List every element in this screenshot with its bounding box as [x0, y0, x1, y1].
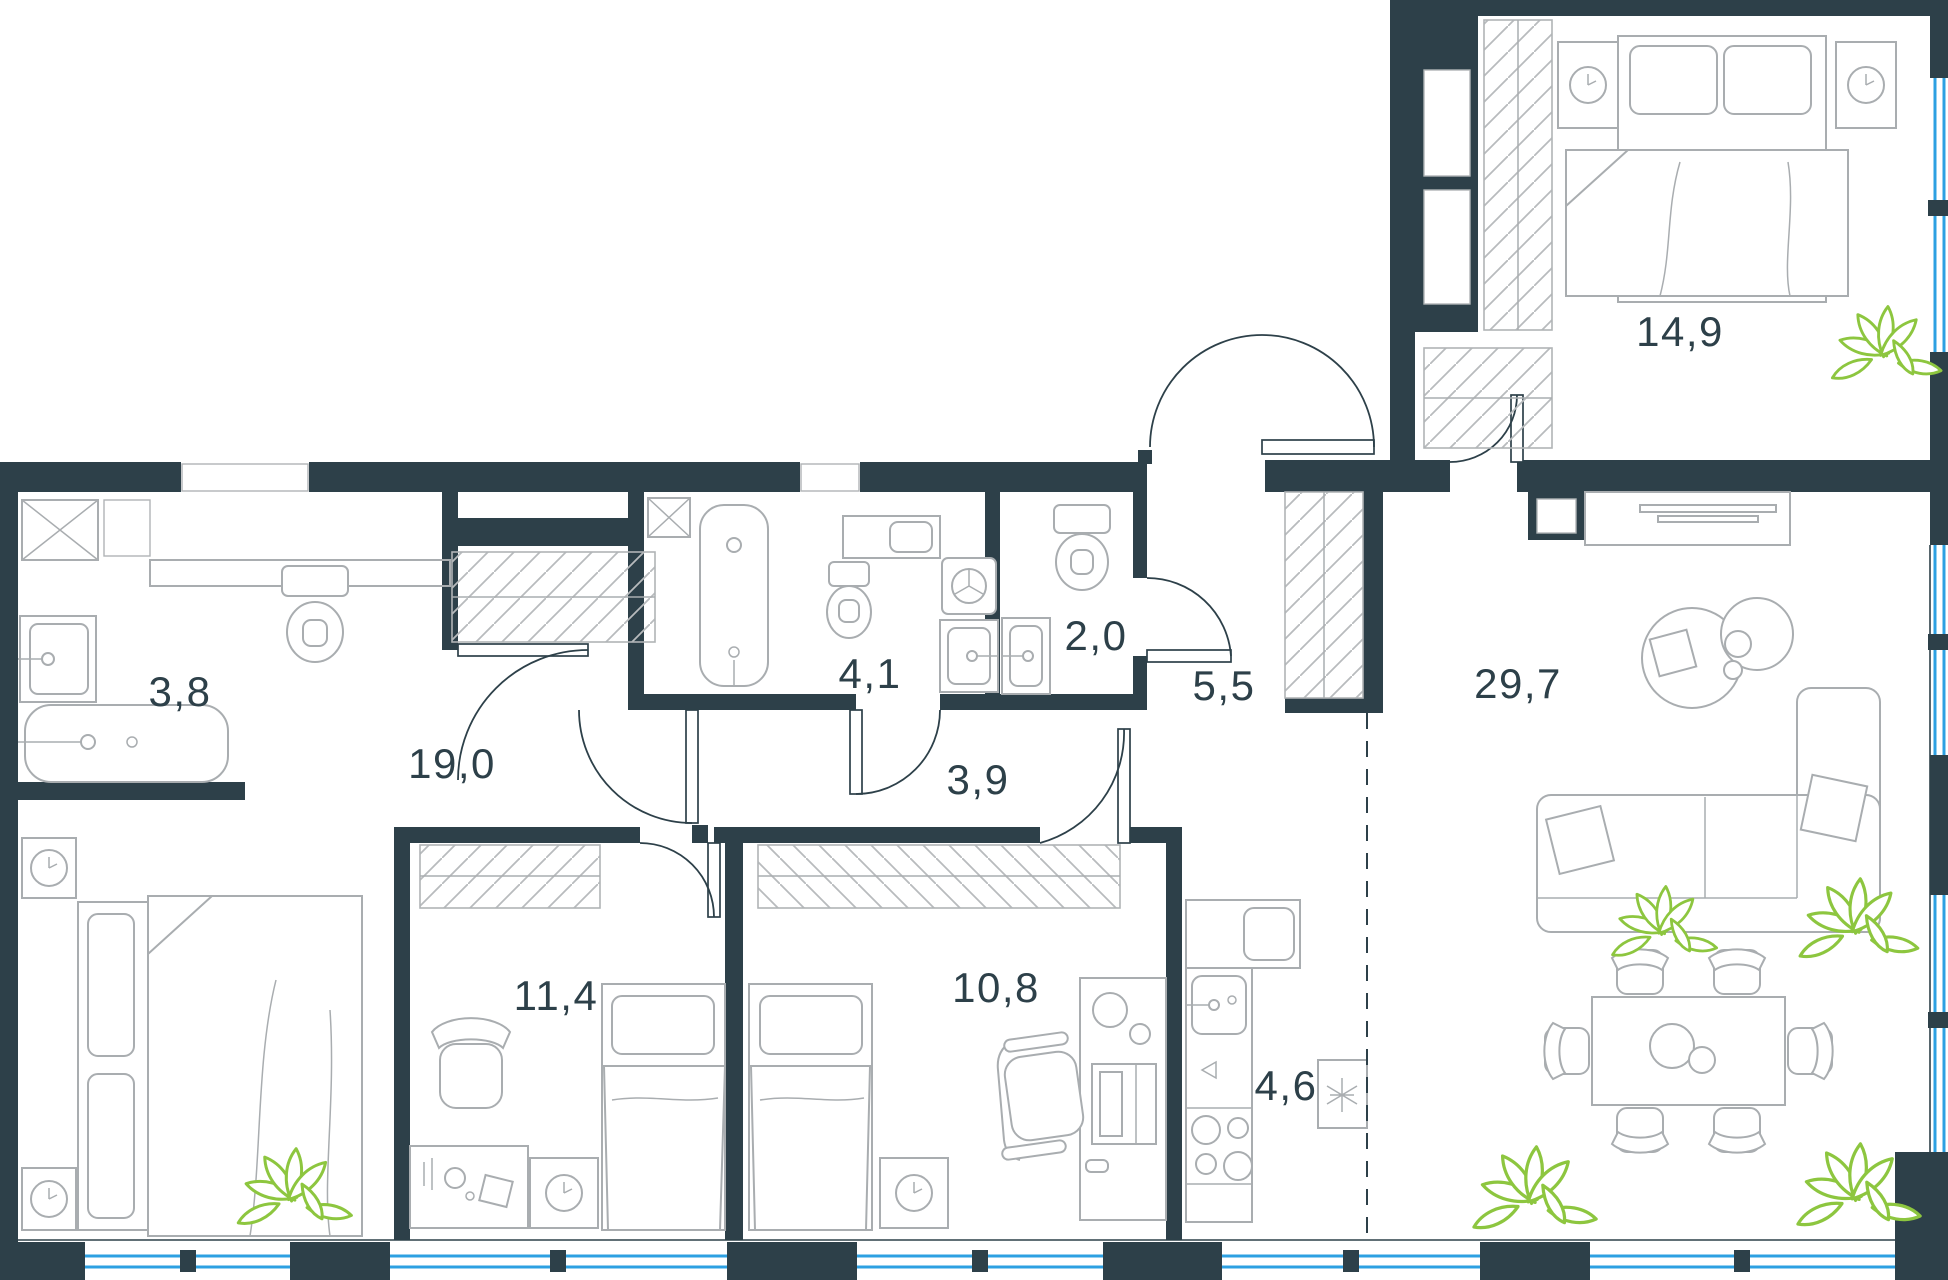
closet-hallway — [1285, 492, 1363, 698]
rack-bedroom-right — [1424, 348, 1552, 448]
bedroom-right-furniture — [1558, 36, 1942, 384]
wc-guest-fixtures — [1002, 505, 1110, 694]
dining-table — [1592, 997, 1785, 1105]
bathtub-icon — [700, 505, 768, 686]
room-label-kitchen: 4,6 — [1255, 1062, 1318, 1109]
washing-machine-icon — [942, 558, 996, 614]
floor-plan: 3,8 19,0 4,1 2,0 5,5 3,9 29,7 14,9 11,4 … — [0, 0, 1948, 1280]
bedroom-middle-furniture — [749, 978, 1166, 1230]
toilet-icon — [282, 566, 348, 662]
sink-icon — [1002, 618, 1050, 694]
single-bed — [602, 984, 725, 1230]
plant-icon — [1471, 1146, 1597, 1233]
room-label-bedroom-middle: 10,8 — [952, 964, 1040, 1011]
room-label-corridor: 3,9 — [947, 756, 1010, 803]
vent-shaft-icon — [648, 498, 690, 537]
bedroom-left-door — [640, 843, 720, 917]
double-bed — [78, 896, 362, 1236]
desk — [410, 1146, 528, 1228]
bathroom-family-door — [850, 710, 940, 794]
bathroom-main-fixtures — [18, 560, 450, 782]
wardrobe-bedroom-master — [452, 552, 655, 642]
nightstand — [530, 1158, 598, 1228]
tv-console — [1585, 492, 1790, 545]
nightstand — [22, 838, 76, 898]
office-chair — [998, 1032, 1086, 1161]
toilet-icon — [1054, 505, 1110, 590]
room-label-bedroom-right: 14,9 — [1636, 308, 1724, 355]
nightstand — [1558, 42, 1618, 128]
toilet-icon — [827, 562, 871, 638]
counter-sink — [843, 516, 940, 558]
kitchen-sink-icon — [1186, 976, 1246, 1034]
wardrobe-bedroom-left — [420, 845, 600, 908]
plant-icon — [1830, 306, 1942, 384]
sink-icon — [18, 616, 96, 702]
room-label-hallway-entry: 5,5 — [1193, 662, 1256, 709]
nightstand — [1836, 42, 1896, 128]
single-bed — [749, 984, 872, 1230]
coffee-table — [1642, 598, 1793, 708]
desk-with-computer — [1080, 978, 1166, 1220]
room-label-bedroom-left: 11,4 — [514, 972, 599, 1019]
fridge — [1186, 900, 1300, 968]
bedroom-master-furniture — [22, 838, 362, 1236]
chair — [432, 1018, 510, 1108]
water-heater — [1318, 1060, 1367, 1128]
vent-shaft-icon — [22, 500, 150, 560]
room-label-bedroom-master: 19,0 — [408, 740, 496, 787]
floor-plan-drawing: 3,8 19,0 4,1 2,0 5,5 3,9 29,7 14,9 11,4 … — [0, 0, 1948, 1280]
wc-guest-door — [1147, 578, 1231, 662]
wardrobe-bedroom-right — [1484, 20, 1552, 330]
bedroom-left-furniture — [410, 984, 725, 1230]
room-label-bathroom-family: 4,1 — [839, 650, 902, 697]
living-room-furniture — [1471, 492, 1921, 1233]
nightstand — [22, 1168, 76, 1230]
sink-icon — [940, 620, 998, 692]
kitchen-fixtures — [1186, 713, 1367, 1240]
bedroom-middle-door — [1040, 729, 1130, 843]
bedroom-master-door — [579, 710, 698, 823]
wardrobe-bedroom-middle — [758, 845, 1120, 908]
bathtub-icon — [18, 705, 228, 782]
window-strip-right — [1928, 78, 1948, 1152]
room-label-living-dining: 29,7 — [1474, 660, 1562, 707]
nightstand — [880, 1158, 948, 1228]
room-label-bathroom-main: 3,8 — [149, 668, 212, 715]
room-label-wc-guest: 2,0 — [1065, 612, 1128, 659]
entrance-door — [1138, 335, 1374, 464]
